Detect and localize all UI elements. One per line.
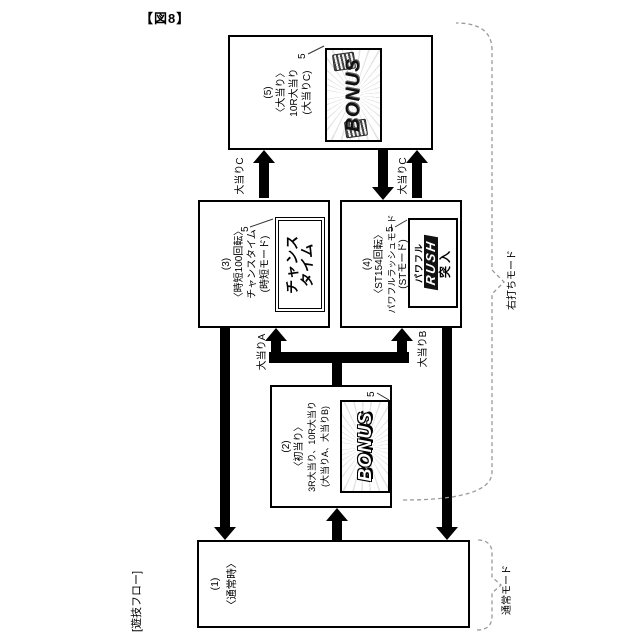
arrow-chance-to-jackpot	[253, 150, 275, 198]
arrow-label-taiatari-c: 大当りC	[231, 146, 246, 206]
reference-numeral-5: 5	[297, 53, 308, 59]
node-subtitle: 3R大当り、10R大当り	[306, 387, 319, 506]
bonus-screen-first-hit: BONUS	[340, 400, 390, 493]
arrow-label-taiatari-a: 大当りA	[253, 320, 268, 384]
arrow-first-hit-to-chance	[265, 328, 287, 354]
bonus-screen-jackpot: BONUS	[325, 48, 382, 142]
node-subtitle: チャンスタイム	[246, 202, 259, 326]
arrow-rush-to-normal	[436, 328, 458, 540]
node-title: 〈ST154回転〉	[374, 202, 386, 326]
diagram-rotated-stage: (1) 〈通常時〉 (2) 〈初当り〉 3R大当り、10R大当り (大当りA、大…	[0, 0, 640, 640]
chance-text-line2: タイム	[300, 241, 315, 288]
branch-arrow-bar	[269, 352, 409, 363]
rush-entry-screen: パワフル RUSH 突入	[408, 218, 458, 308]
node-number: (2)	[280, 387, 293, 506]
bonus-text: BONUS	[343, 58, 365, 132]
node-subtitle: (大当りA、大当りB)	[319, 387, 332, 506]
node-number: (1)	[207, 542, 224, 626]
reference-numeral-5: 5	[240, 226, 251, 232]
arrow-rush-to-jackpot	[406, 150, 428, 198]
node-title: 〈初当り〉	[293, 387, 306, 506]
arrow-jackpot-to-rush	[372, 150, 394, 200]
arrow-chance-to-normal	[214, 328, 236, 540]
rush-text-line3: 突入	[439, 248, 452, 278]
branch-arrow-stem	[332, 359, 342, 387]
game-flow-label: [遊技フロー]	[128, 571, 144, 632]
node-subtitle: パワフルラッシュモード	[386, 202, 398, 326]
arrow-label-taiatari-c: 大当りC	[394, 146, 409, 206]
node-number: (5)	[262, 37, 275, 148]
bonus-text: BONUS	[355, 412, 376, 482]
node-number: (4)	[362, 202, 374, 326]
node-number: (3)	[220, 202, 233, 326]
reference-numeral-5: 5	[385, 226, 396, 232]
patent-figure-page: 【図8】 (1) 〈通常時〉 (2) 〈初当り〉 3R大当り、10R大当り (大…	[0, 0, 640, 640]
node-title: 〈大当り〉	[275, 37, 288, 148]
arrow-label-taiatari-b: 大当りB	[414, 317, 429, 381]
node-title: 〈時短100回転〉	[233, 202, 246, 326]
reference-numeral-5: 5	[366, 391, 377, 397]
arrow-first-hit-to-rush	[391, 328, 413, 354]
chance-time-screen: チャンス タイム	[275, 217, 325, 312]
right-strike-mode-label: 右打ちモード	[503, 230, 518, 330]
node-subtitle: (時短モード)	[259, 202, 272, 326]
rush-text-line2: RUSH	[424, 235, 438, 290]
node-title: 〈通常時〉	[224, 542, 241, 626]
normal-mode-label: 通常モード	[498, 540, 513, 640]
node-normal-state: (1) 〈通常時〉	[197, 540, 470, 628]
arrow-normal-to-first-hit	[326, 508, 348, 540]
chance-text-line1: チャンス	[285, 234, 300, 296]
